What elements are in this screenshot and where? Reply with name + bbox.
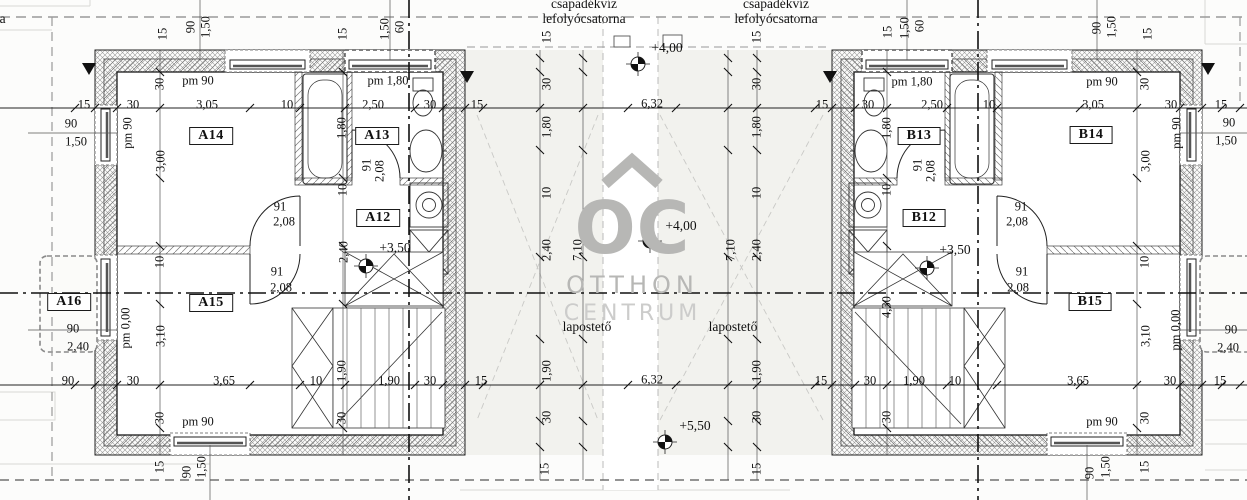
drain-label-right: csapadékvíz lefolyócsatorna [734, 0, 817, 26]
flat-roof-label-left: lapostető [563, 319, 612, 335]
drain-label-left-line2: lefolyócsatorna [542, 11, 625, 26]
unit-a-geometry [40, 50, 465, 455]
flat-roof-label-right: lapostető [709, 319, 758, 335]
window-top-1 [225, 50, 310, 72]
floor-plan-canvas: OC OTTHON CENTRUM csapadékvíz lefolyócsa… [0, 0, 1247, 500]
balcony-door-left [95, 255, 117, 340]
drain-label-edge-line1: csapadékvíz [0, 0, 6, 11]
drain-label-right-line2: lefolyócsatorna [734, 11, 817, 26]
watermark-logo: OC OTTHON CENTRUM [560, 148, 705, 326]
drain-label-left-line1: csapadékvíz [542, 0, 625, 11]
watermark-monogram: OC [560, 193, 705, 263]
window-left [95, 105, 117, 165]
drain-label-right-line1: csapadékvíz [734, 0, 817, 11]
drain-label-edge-line2: lefolyócsatorna [0, 11, 6, 26]
unit-b-geometry [832, 50, 1247, 455]
watermark-roof-icon [560, 148, 705, 188]
drain-label-edge: csapadékvíz lefolyócsatorna [0, 0, 6, 26]
watermark-brand-line1: OTTHON [560, 271, 705, 299]
balcony-outline [40, 256, 97, 352]
drain-label-left: csapadékvíz lefolyócsatorna [542, 0, 625, 26]
